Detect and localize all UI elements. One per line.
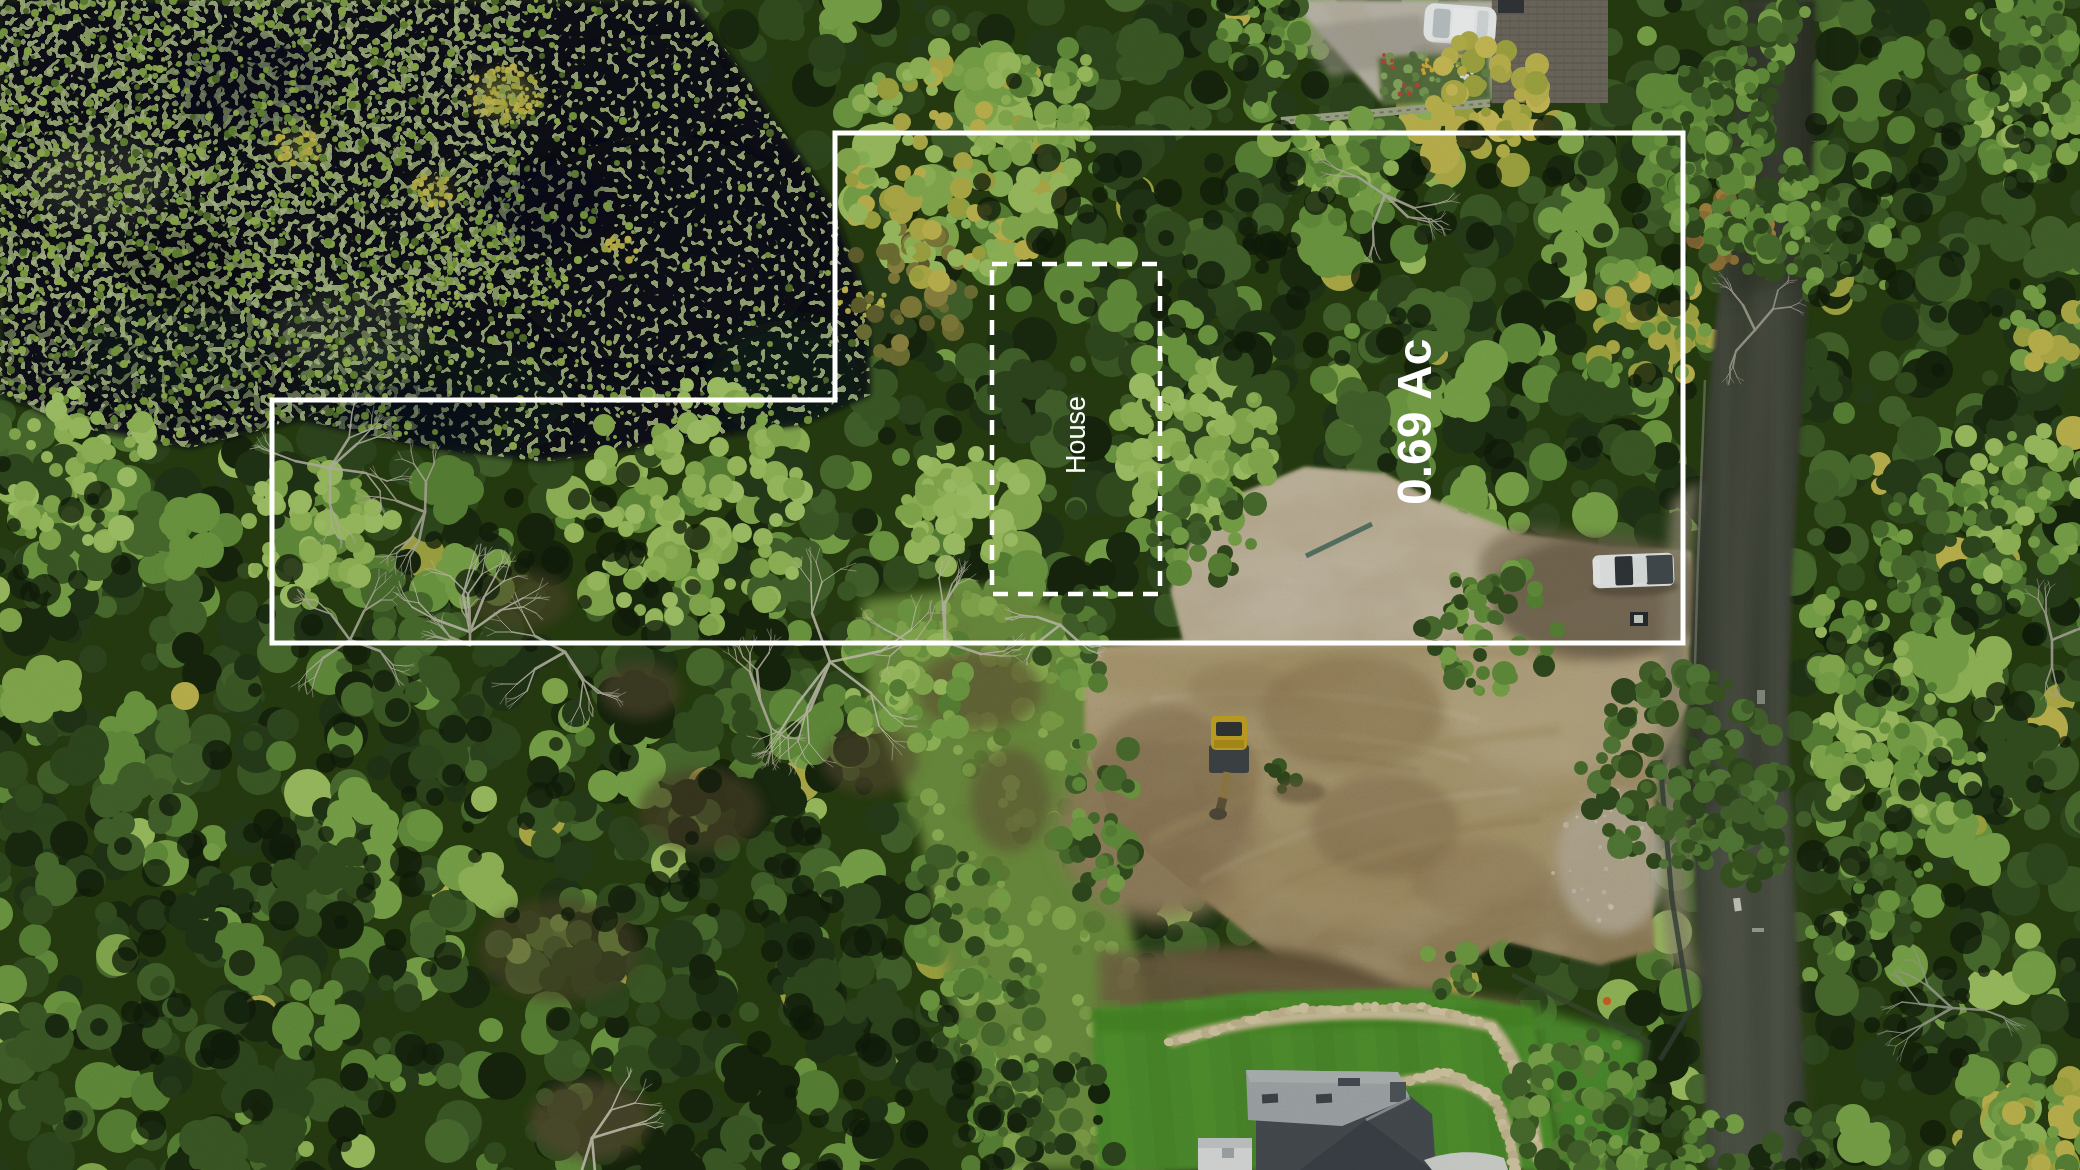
svg-text:House: House: [1061, 396, 1091, 474]
svg-text:0.69 Ac: 0.69 Ac: [1388, 339, 1441, 505]
